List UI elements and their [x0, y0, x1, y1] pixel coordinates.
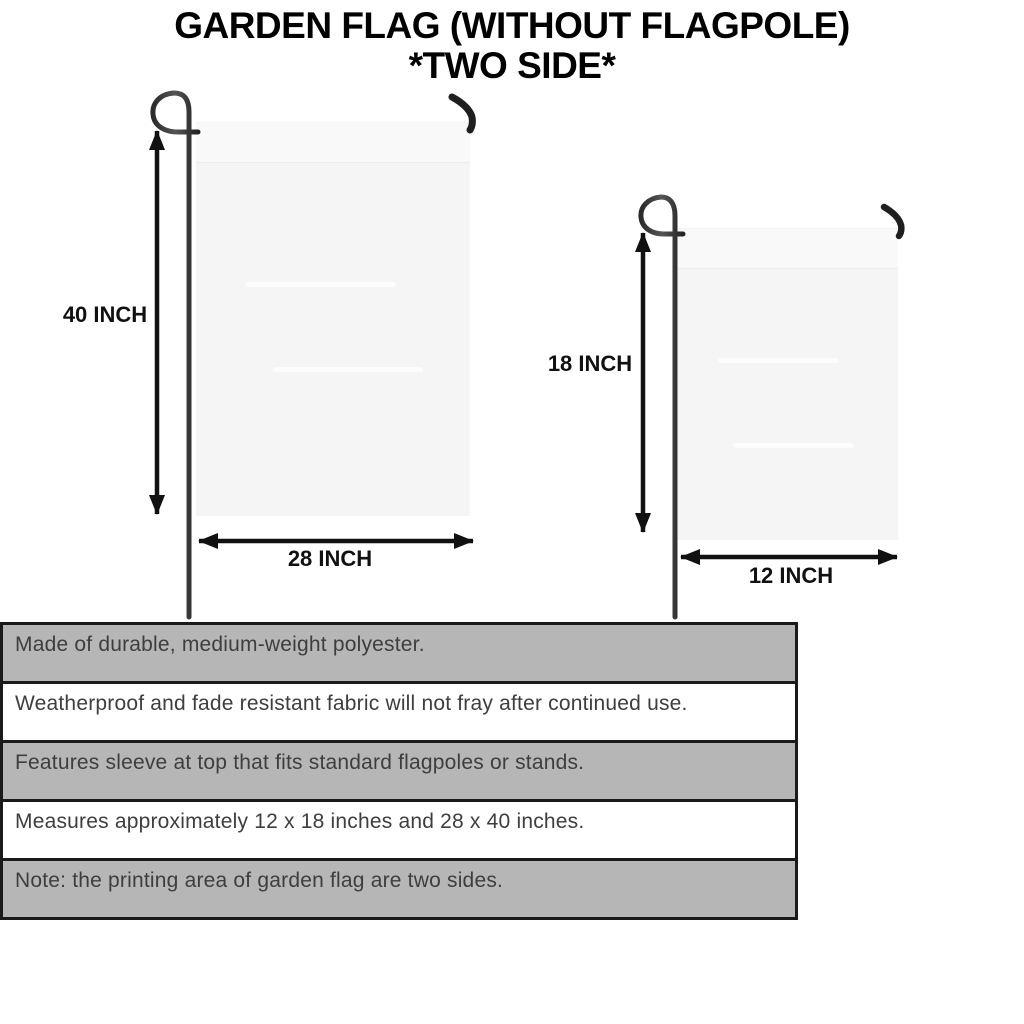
- flag-small-fold: [733, 443, 854, 448]
- feature-list: Made of durable, medium-weight polyester…: [0, 622, 798, 920]
- dimension-label-small-height: 18 INCH: [520, 351, 660, 377]
- feature-row: Note: the printing area of garden flag a…: [3, 861, 795, 917]
- page-title: GARDEN FLAG (WITHOUT FLAGPOLE) *TWO SIDE…: [0, 6, 1024, 86]
- feature-row: Weatherproof and fade resistant fabric w…: [3, 684, 795, 743]
- feature-text: Measures approximately 12 x 18 inches an…: [3, 802, 795, 834]
- feature-row: Features sleeve at top that fits standar…: [3, 743, 795, 802]
- flag-large-sleeve: [196, 122, 470, 163]
- flag-small-sleeve: [678, 228, 898, 269]
- dimension-label-small-width: 12 INCH: [721, 563, 861, 589]
- garden-flag-size-infographic: GARDEN FLAG (WITHOUT FLAGPOLE) *TWO SIDE…: [0, 0, 1024, 1024]
- feature-text: Note: the printing area of garden flag a…: [3, 861, 795, 893]
- flagpole-large: [153, 93, 198, 617]
- feature-row: Measures approximately 12 x 18 inches an…: [3, 802, 795, 861]
- dimension-label-large-height: 40 INCH: [35, 302, 175, 328]
- title-line-1: GARDEN FLAG (WITHOUT FLAGPOLE): [0, 6, 1024, 46]
- flag-small-preview: [678, 228, 898, 540]
- flag-small-fold: [718, 358, 839, 363]
- feature-text: Features sleeve at top that fits standar…: [3, 743, 795, 775]
- feature-text: Weatherproof and fade resistant fabric w…: [3, 684, 795, 716]
- flag-large-fold: [245, 282, 396, 287]
- flag-large-fold: [273, 367, 424, 372]
- flagpole-small: [641, 197, 683, 617]
- dimension-label-large-width: 28 INCH: [260, 546, 400, 572]
- title-line-2: *TWO SIDE*: [0, 46, 1024, 86]
- feature-text: Made of durable, medium-weight polyester…: [3, 625, 795, 657]
- flag-large-preview: [196, 122, 470, 516]
- feature-row: Made of durable, medium-weight polyester…: [3, 625, 795, 684]
